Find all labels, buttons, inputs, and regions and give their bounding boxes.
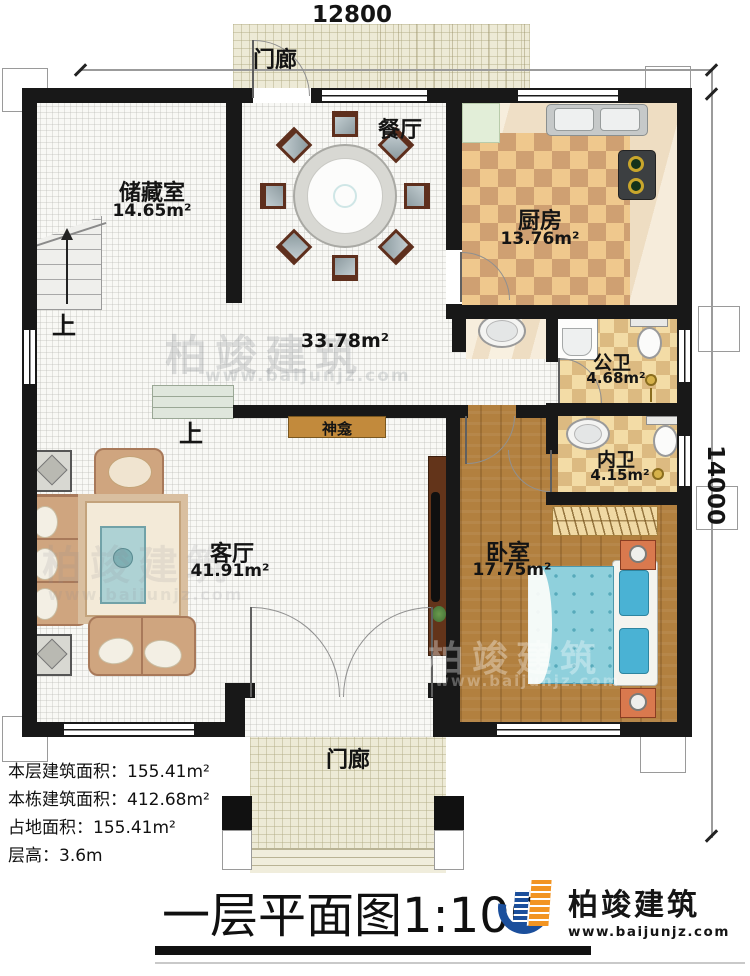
armchair-cushion (108, 456, 152, 488)
window-bedroom-bottom (497, 722, 620, 737)
info-footprint-area: 占地面积：155.41m² (8, 814, 210, 842)
info-footprint-value: 155.41m² (93, 818, 176, 838)
plant (432, 606, 446, 622)
wall-ensuite-left (546, 403, 558, 454)
window-kitchen (518, 88, 618, 103)
dimension-height: 14000 (702, 445, 728, 525)
logo-building-orange-icon (528, 880, 551, 926)
logo-building-blue-icon (513, 890, 530, 926)
kitchen-sink-basin (554, 108, 594, 131)
floor-drain-stem (650, 388, 652, 402)
wash-basin-inner (486, 320, 518, 342)
column (698, 306, 740, 352)
kitchen-area: 13.76m² (501, 229, 580, 249)
porch-top-label: 门廊 (253, 42, 297, 74)
floor-drain (645, 374, 657, 386)
hall-area: 33.78m² (301, 330, 389, 352)
wall-ensuite-bottom (546, 492, 692, 505)
door-leaf-ensuite (550, 450, 552, 492)
dimension-width: 12800 (312, 2, 392, 28)
stairs-up-arrow (66, 238, 68, 304)
stairs-up-label-storage: 上 (52, 306, 76, 341)
floor-plan-sheet: 12800 14000 门廊 门廊 柏竣建筑 www.baijunjz.com … (0, 0, 750, 976)
dining-label: 餐厅 (378, 112, 422, 144)
dining-table-center (333, 184, 357, 208)
bed-pillow (619, 570, 649, 616)
ensuite-bath-area: 4.15m² (590, 466, 649, 484)
wall-exterior-left (22, 88, 37, 737)
info-footprint-label: 占地面积： (8, 818, 93, 838)
living-area: 41.91m² (191, 561, 270, 581)
stove-burner (628, 156, 644, 172)
window-dining (322, 88, 427, 103)
brand-logo-mark (498, 874, 562, 940)
wall-bath-divider (546, 403, 692, 416)
bed-pillow (619, 628, 649, 674)
nightstand-lamp (629, 693, 647, 711)
brand-text: 柏竣建筑 www.baijunjz.com (568, 880, 730, 940)
porch-bottom-steps (250, 848, 446, 873)
brand-logo: 柏竣建筑 www.baijunjz.com (498, 872, 744, 944)
dining-chair (332, 111, 358, 137)
toilet (630, 318, 668, 327)
wall-niche-left (452, 305, 466, 352)
wall-public-bath-left (546, 305, 558, 362)
title-underline-thin (155, 962, 745, 964)
brand-name: 柏竣建筑 (568, 880, 730, 924)
bedroom-area: 17.75m² (473, 560, 552, 580)
plan-info: 本层建筑面积：155.41m² 本栋建筑面积：412.68m² 占地面积：155… (8, 758, 210, 870)
stairs-up-label-living: 上 (179, 414, 203, 449)
porch-column-left (222, 796, 252, 830)
window-left (22, 330, 37, 384)
porch-column-base-left (222, 830, 252, 870)
window-public-bath (677, 330, 692, 382)
info-storey-height-value: 3.6m (59, 846, 103, 866)
info-building-area: 本栋建筑面积：412.68m² (8, 786, 210, 814)
dining-chair (404, 183, 430, 209)
wall-kitchen-bottom (446, 305, 692, 319)
info-storey-height: 层高：3.6m (8, 842, 210, 870)
floor-drain (652, 468, 664, 480)
dimension-line-top (81, 69, 712, 71)
toilet-bowl (653, 425, 678, 457)
shrine-label: 神龛 (322, 418, 352, 439)
watermark-url: www.baijunjz.com (435, 672, 620, 690)
tv (431, 492, 440, 602)
plan-title: 一层平面图1:100 (162, 876, 540, 946)
porch-top-steps (380, 24, 530, 90)
dining-chair (260, 183, 286, 209)
brand-url: www.baijunjz.com (568, 924, 730, 940)
plan-title-text: 一层平面图 (162, 888, 402, 944)
window-living-bottom (64, 722, 194, 737)
info-building-area-label: 本栋建筑面积： (8, 790, 127, 810)
wall-storage-dining (226, 88, 242, 303)
stairs-up-arrowhead (61, 228, 73, 240)
window-ensuite-bath (677, 436, 692, 486)
wardrobe (552, 506, 658, 536)
stove-burner (628, 178, 644, 194)
info-building-area-value: 412.68m² (127, 790, 210, 810)
info-floor-area: 本层建筑面积：155.41m² (8, 758, 210, 786)
nightstand-lamp (629, 545, 647, 563)
kitchen-sink-basin (600, 108, 640, 131)
watermark-url: www.baijunjz.com (48, 585, 243, 604)
porch-bottom-label: 门廊 (326, 742, 370, 774)
kitchen-counter-green (462, 103, 500, 143)
public-bath-area: 4.68m² (586, 369, 645, 387)
ensuite-basin-inner (574, 424, 602, 444)
wall-bedroom-top-b (516, 405, 546, 418)
info-floor-area-value: 155.41m² (127, 762, 210, 782)
porch-column-base-right (434, 830, 464, 870)
porch-column-right (434, 796, 464, 830)
storage-area: 14.65m² (113, 201, 192, 221)
title-underline (155, 946, 591, 955)
washing-machine-door (562, 328, 592, 356)
column (640, 735, 686, 773)
dining-chair (332, 255, 358, 281)
info-floor-area-label: 本层建筑面积： (8, 762, 127, 782)
info-storey-height-label: 层高： (8, 846, 59, 866)
watermark-url: www.baijunjz.com (205, 366, 411, 386)
toilet-bowl (637, 327, 662, 359)
